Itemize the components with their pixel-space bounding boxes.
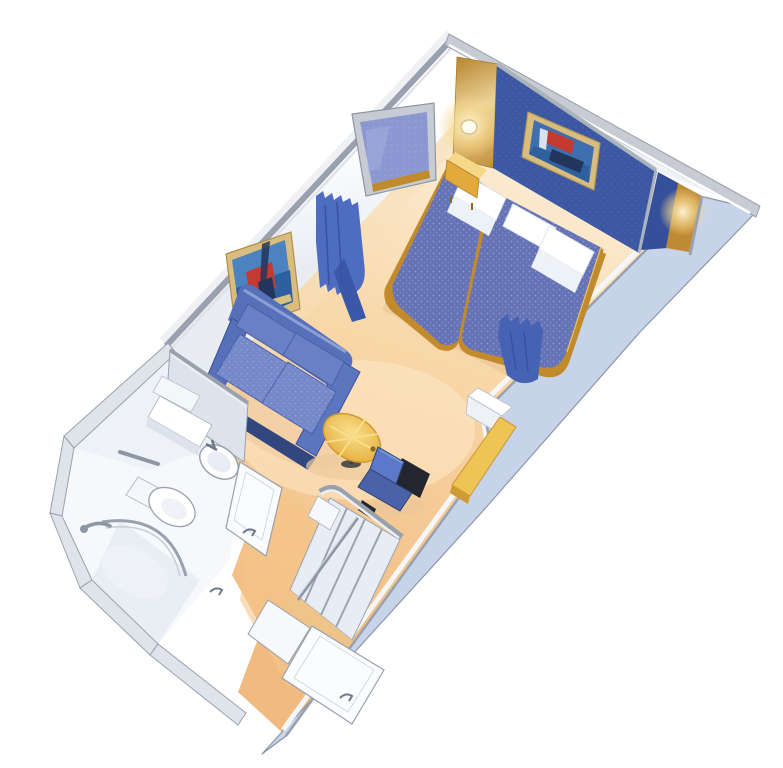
stateroom-illustration bbox=[0, 0, 783, 768]
wall-sconce-left bbox=[461, 120, 477, 134]
shower-head-base bbox=[80, 525, 88, 533]
table-knob bbox=[370, 446, 375, 451]
door-handle-icon bbox=[210, 588, 222, 595]
wall-mirror bbox=[352, 103, 436, 196]
